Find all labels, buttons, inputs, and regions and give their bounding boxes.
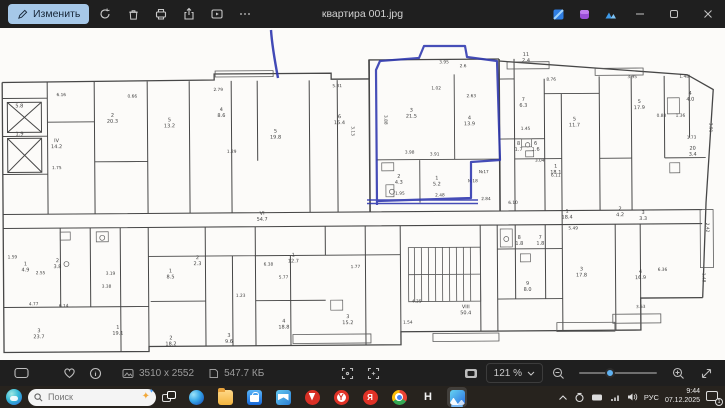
volume-icon[interactable] xyxy=(627,392,638,402)
svg-text:№17: №17 xyxy=(479,169,489,175)
yandex-browser-icon: Y xyxy=(334,390,349,405)
image-dimensions: 3510 x 2552 xyxy=(139,368,194,379)
svg-text:3.91: 3.91 xyxy=(707,123,713,133)
edit-button[interactable]: Изменить xyxy=(8,4,89,24)
svg-text:19.8: 19.8 xyxy=(270,135,281,141)
svg-text:17.9: 17.9 xyxy=(634,105,645,111)
security-app-button[interactable] xyxy=(302,387,322,407)
svg-text:18.2: 18.2 xyxy=(165,341,176,347)
network-icon[interactable] xyxy=(610,393,621,402)
notification-badge: 1 xyxy=(715,398,723,406)
svg-text:1.75: 1.75 xyxy=(52,165,62,171)
zoom-slider[interactable] xyxy=(579,372,657,374)
yandex-icon: Я xyxy=(363,390,378,405)
trash-icon xyxy=(127,8,140,21)
svg-text:4.35: 4.35 xyxy=(412,299,422,305)
edit-button-label: Изменить xyxy=(33,8,80,20)
h-app-button[interactable]: H xyxy=(418,387,438,407)
svg-text:6.11: 6.11 xyxy=(551,173,561,179)
info-button[interactable] xyxy=(82,362,108,384)
svg-text:4.3: 4.3 xyxy=(395,180,403,186)
svg-text:18.4: 18.4 xyxy=(562,215,573,221)
svg-text:1.77: 1.77 xyxy=(351,264,361,270)
svg-text:3.95: 3.95 xyxy=(627,74,637,80)
taskbar-apps: Y Я H xyxy=(186,387,467,407)
svg-text:3.95: 3.95 xyxy=(439,59,449,65)
svg-text:3.53: 3.53 xyxy=(636,304,646,310)
svg-text:1.95: 1.95 xyxy=(395,191,405,197)
info-icon xyxy=(89,367,102,380)
svg-text:1.8: 1.8 xyxy=(515,241,523,247)
heart-icon xyxy=(63,367,76,379)
toolbar-left: Изменить xyxy=(0,3,257,25)
svg-text:20.3: 20.3 xyxy=(107,119,118,125)
svg-text:3.88: 3.88 xyxy=(382,115,388,125)
zoom-out-icon xyxy=(552,367,565,380)
store-app-button[interactable] xyxy=(244,387,264,407)
system-tray: РУС 9:44 07.12.2025 1 xyxy=(558,388,721,406)
svg-text:1.7: 1.7 xyxy=(515,147,523,153)
file-size-group: 547.7 КБ xyxy=(208,368,264,379)
svg-text:5.8: 5.8 xyxy=(15,103,23,109)
floorplan-image: 5.81.9IV14.2220.3513.248.6519.8615.4321.… xyxy=(0,28,725,360)
clock[interactable]: 9:44 07.12.2025 xyxy=(665,388,700,406)
svg-text:1.36: 1.36 xyxy=(676,113,686,119)
yandex-browser-button[interactable]: Y xyxy=(331,387,351,407)
svg-text:№18: №18 xyxy=(468,178,478,184)
svg-text:1.45: 1.45 xyxy=(521,126,531,132)
svg-text:2.42: 2.42 xyxy=(704,223,710,233)
ai-edit-button[interactable] xyxy=(545,3,571,25)
visual-select-button[interactable] xyxy=(334,362,360,384)
filmstrip-toggle-button[interactable] xyxy=(8,362,34,384)
visual-search-button[interactable] xyxy=(360,362,386,384)
fit-window-icon xyxy=(464,368,478,379)
gallery-button[interactable] xyxy=(597,3,623,25)
fit-window-button[interactable] xyxy=(458,362,484,384)
svg-text:2.84: 2.84 xyxy=(481,196,491,202)
svg-text:4.77: 4.77 xyxy=(29,301,39,307)
svg-text:0.66: 0.66 xyxy=(127,94,137,100)
chevron-down-icon xyxy=(527,371,535,376)
chrome-icon xyxy=(392,390,407,405)
minimize-button[interactable] xyxy=(623,0,657,28)
task-view-button[interactable] xyxy=(162,391,176,403)
svg-text:6.10: 6.10 xyxy=(508,200,518,206)
svg-text:15.2: 15.2 xyxy=(342,320,353,326)
security-shield-icon xyxy=(305,390,320,405)
search-input[interactable] xyxy=(48,392,137,402)
svg-text:3.13: 3.13 xyxy=(349,126,355,136)
titlebar: Изменить xyxy=(0,0,725,28)
svg-text:54.7: 54.7 xyxy=(257,217,268,223)
statusbar: 3510 x 2552 547.7 КБ xyxy=(0,360,725,386)
svg-text:21.5: 21.5 xyxy=(406,114,417,120)
file-size: 547.7 КБ xyxy=(224,368,264,379)
svg-text:2.4: 2.4 xyxy=(522,58,530,64)
selection-frame-icon xyxy=(341,367,354,380)
svg-text:3.38: 3.38 xyxy=(102,284,112,290)
tray-date: 07.12.2025 xyxy=(665,397,700,406)
svg-text:1.48: 1.48 xyxy=(679,74,689,80)
svg-text:2.6: 2.6 xyxy=(460,63,467,69)
photos-icon xyxy=(450,390,465,405)
more-icon xyxy=(238,7,252,21)
svg-text:1.29: 1.29 xyxy=(227,149,237,155)
zoom-in-button[interactable] xyxy=(665,362,691,384)
tray-time: 9:44 xyxy=(665,388,700,397)
image-viewer[interactable]: 5.81.9IV14.2220.3513.248.6519.8615.4321.… xyxy=(0,28,725,360)
svg-text:19.1: 19.1 xyxy=(112,331,123,337)
svg-text:2.79: 2.79 xyxy=(213,87,223,93)
rotate-icon xyxy=(98,7,112,21)
svg-text:8.76: 8.76 xyxy=(546,77,556,83)
svg-text:9.6: 9.6 xyxy=(225,339,233,345)
share-button[interactable] xyxy=(177,3,201,25)
svg-text:6.36: 6.36 xyxy=(658,267,668,273)
svg-text:16.9: 16.9 xyxy=(635,275,646,281)
scan-sparkle-icon xyxy=(367,367,380,380)
svg-text:4.9: 4.9 xyxy=(21,267,29,273)
svg-text:3.4: 3.4 xyxy=(689,152,697,158)
zoom-in-icon xyxy=(672,367,685,380)
printer-icon xyxy=(154,7,168,21)
search-box[interactable]: ✦✦ xyxy=(28,389,156,406)
svg-text:1.73: 1.73 xyxy=(687,135,697,141)
slideshow-button[interactable] xyxy=(205,3,229,25)
maximize-button[interactable] xyxy=(657,0,691,28)
slideshow-icon xyxy=(210,7,224,21)
chrome-app-button[interactable] xyxy=(389,387,409,407)
svg-text:1.59: 1.59 xyxy=(8,254,18,260)
svg-text:4.0: 4.0 xyxy=(686,97,694,103)
svg-text:11.7: 11.7 xyxy=(569,122,580,128)
svg-text:14.2: 14.2 xyxy=(51,144,62,150)
svg-text:50.4: 50.4 xyxy=(460,310,471,316)
svg-text:3.3: 3.3 xyxy=(639,216,647,222)
svg-text:0.88: 0.88 xyxy=(657,113,667,119)
svg-text:8.6: 8.6 xyxy=(217,113,225,119)
delete-button[interactable] xyxy=(121,3,145,25)
favorite-button[interactable] xyxy=(56,362,82,384)
copilot-sparkle-icon: ✦✦ xyxy=(142,392,150,402)
photos-app-window: Изменить xyxy=(0,0,725,408)
more-button[interactable] xyxy=(233,3,257,25)
svg-text:6.38: 6.38 xyxy=(264,262,274,268)
svg-text:1.6: 1.6 xyxy=(532,147,540,153)
gallery-icon xyxy=(604,8,617,21)
svg-text:3.98: 3.98 xyxy=(405,150,415,156)
close-button[interactable] xyxy=(691,0,725,28)
svg-text:13.9: 13.9 xyxy=(464,121,475,127)
photos-app-button[interactable] xyxy=(447,387,467,407)
zoom-out-button[interactable] xyxy=(545,362,571,384)
svg-text:1.23: 1.23 xyxy=(236,293,246,299)
svg-text:4.2: 4.2 xyxy=(616,212,624,218)
folder-icon xyxy=(218,390,233,405)
tray-chevron-up-icon[interactable] xyxy=(558,394,568,401)
svg-text:15.4: 15.4 xyxy=(334,120,345,126)
rotate-button[interactable] xyxy=(93,3,117,25)
pen-stroke-mark xyxy=(258,28,298,80)
zoom-controls: 121 % xyxy=(458,362,719,384)
svg-text:2.55: 2.55 xyxy=(36,270,46,276)
h-app-icon: H xyxy=(421,390,436,405)
taskbar: ✦✦ Y Я H xyxy=(0,386,725,408)
pen-icon xyxy=(17,9,28,20)
widgets-button[interactable] xyxy=(6,389,22,405)
svg-text:5.2: 5.2 xyxy=(433,181,441,187)
image-dimensions-group: 3510 x 2552 xyxy=(122,368,194,379)
svg-text:3.8: 3.8 xyxy=(53,264,61,270)
svg-text:3.04: 3.04 xyxy=(535,158,545,164)
device-icon[interactable] xyxy=(591,393,604,402)
edge-app-button[interactable] xyxy=(186,387,206,407)
titlebar-right xyxy=(545,0,725,28)
mail-icon xyxy=(276,390,291,405)
svg-text:12.7: 12.7 xyxy=(288,258,299,264)
svg-text:3.19: 3.19 xyxy=(106,271,116,277)
svg-text:17.8: 17.8 xyxy=(576,272,587,278)
share-icon xyxy=(182,7,196,21)
svg-text:6.3: 6.3 xyxy=(519,103,527,109)
notification-center-button[interactable]: 1 xyxy=(706,391,721,404)
zoom-level: 121 % xyxy=(494,368,522,379)
svg-text:5.49: 5.49 xyxy=(568,225,578,231)
filmstrip-icon xyxy=(14,367,29,379)
sync-status-icon[interactable] xyxy=(574,392,585,403)
image-icon xyxy=(122,368,134,379)
print-button[interactable] xyxy=(149,3,173,25)
zoom-level-dropdown[interactable]: 121 % xyxy=(486,363,543,383)
svg-text:2.3: 2.3 xyxy=(193,261,201,267)
ai-edit-icon xyxy=(552,8,565,21)
yandex-app-button[interactable]: Я xyxy=(360,387,380,407)
file-explorer-button[interactable] xyxy=(215,387,235,407)
language-indicator[interactable]: РУС xyxy=(644,393,659,402)
svg-text:1.48: 1.48 xyxy=(701,273,707,283)
storage-icon xyxy=(208,368,219,379)
svg-text:8.5: 8.5 xyxy=(167,274,175,280)
svg-text:18.8: 18.8 xyxy=(278,324,289,330)
svg-text:23.7: 23.7 xyxy=(33,334,44,340)
svg-text:2.48: 2.48 xyxy=(435,192,445,198)
svg-text:1.54: 1.54 xyxy=(403,320,413,326)
svg-text:1.8: 1.8 xyxy=(536,241,544,247)
svg-text:1.9: 1.9 xyxy=(16,131,24,137)
taskbar-left: ✦✦ xyxy=(0,389,176,406)
fullscreen-button[interactable] xyxy=(693,362,719,384)
svg-text:5.77: 5.77 xyxy=(279,275,289,281)
edge-icon xyxy=(189,390,204,405)
svg-text:8.0: 8.0 xyxy=(524,287,532,293)
zoom-slider-thumb[interactable] xyxy=(605,368,615,378)
fullscreen-icon xyxy=(700,367,713,380)
svg-text:2.63: 2.63 xyxy=(466,93,476,99)
svg-text:1.02: 1.02 xyxy=(431,85,441,91)
search-icon xyxy=(34,393,43,402)
svg-text:3.91: 3.91 xyxy=(430,151,440,157)
designer-icon xyxy=(578,8,591,21)
svg-text:6.14: 6.14 xyxy=(59,303,69,309)
mail-app-button[interactable] xyxy=(273,387,293,407)
svg-text:13.2: 13.2 xyxy=(164,123,175,129)
svg-text:5.31: 5.31 xyxy=(332,83,342,89)
designer-button[interactable] xyxy=(571,3,597,25)
svg-text:6.16: 6.16 xyxy=(56,92,66,98)
store-icon xyxy=(247,390,262,405)
